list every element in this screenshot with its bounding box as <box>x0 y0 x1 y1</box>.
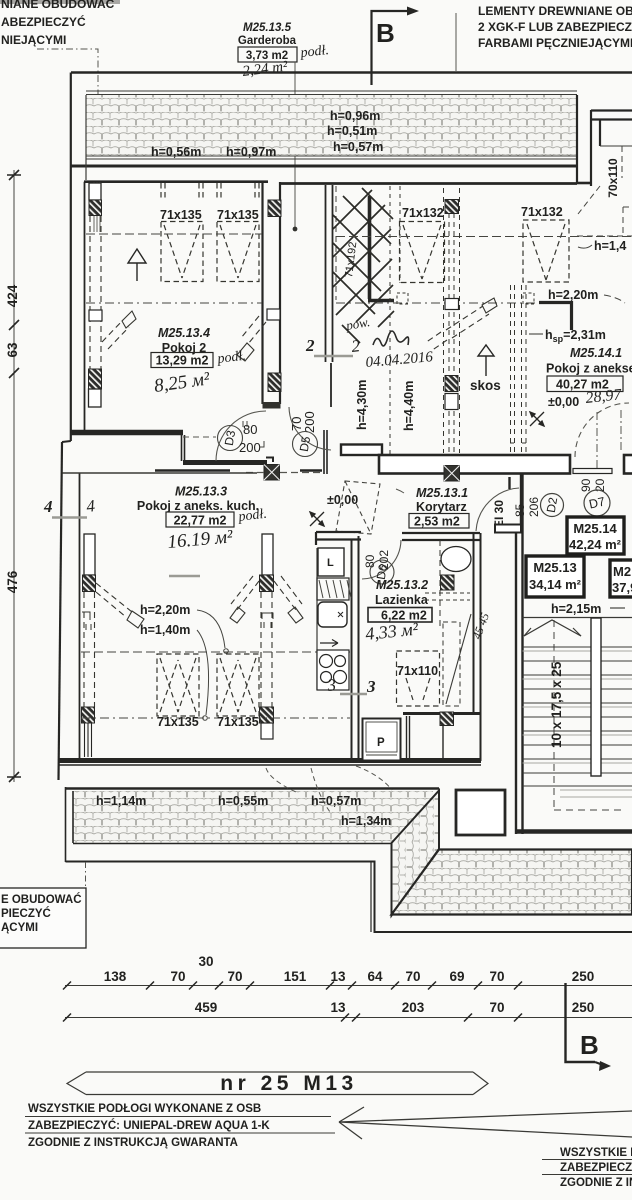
svg-text:10 x 17,5 x 25: 10 x 17,5 x 25 <box>549 661 564 748</box>
svg-text:70: 70 <box>489 1000 504 1015</box>
svg-text:D2: D2 <box>544 496 561 514</box>
svg-text:h=0,56m: h=0,56m <box>151 145 201 159</box>
svg-text:Lazienka: Lazienka <box>375 593 429 607</box>
svg-text:ZABEZPIECZYĆ:: ZABEZPIECZYĆ: <box>560 1161 632 1174</box>
svg-text:3: 3 <box>325 675 336 695</box>
svg-text:200: 200 <box>239 440 261 455</box>
svg-text:ZGODNIE Z INS: ZGODNIE Z INS <box>560 1177 632 1189</box>
svg-text:PIECZYĆ: PIECZYĆ <box>1 907 51 920</box>
svg-text:70x110: 70x110 <box>606 158 620 198</box>
svg-text:71x132: 71x132 <box>521 205 563 219</box>
svg-text:NIEJĄCYMI: NIEJĄCYMI <box>1 33 66 47</box>
svg-text:203: 203 <box>402 1000 425 1015</box>
svg-text:h=0,57m: h=0,57m <box>311 794 361 808</box>
svg-text:4: 4 <box>43 497 53 516</box>
svg-text:nr 25 M13: nr 25 M13 <box>220 1072 357 1095</box>
svg-text:Pokoj z anekse: Pokoj z anekse <box>546 362 632 376</box>
svg-text:ABEZPIECZYĆ: ABEZPIECZYĆ <box>1 14 86 29</box>
svg-text:13: 13 <box>330 969 346 984</box>
svg-text:M25.14: M25.14 <box>573 521 617 536</box>
svg-text:71x135: 71x135 <box>160 208 202 222</box>
svg-text:M25.13.4: M25.13.4 <box>158 326 210 340</box>
svg-text:151: 151 <box>284 969 307 984</box>
svg-text:B: B <box>580 1030 599 1060</box>
svg-text:64: 64 <box>367 969 383 984</box>
svg-text:22,77 m2: 22,77 m2 <box>174 514 227 528</box>
svg-text:h=1,14m: h=1,14m <box>96 794 146 808</box>
svg-text:ZABEZPIECZYĆ: UNIEPAL-DREW AQU: ZABEZPIECZYĆ: UNIEPAL-DREW AQUA 1-K <box>28 1119 270 1132</box>
svg-text:podł.: podł. <box>299 43 330 61</box>
svg-text:LEMENTY DREWNIANE OBUDOW: LEMENTY DREWNIANE OBUDOW <box>478 4 632 18</box>
svg-text:2: 2 <box>305 336 315 355</box>
svg-text:13: 13 <box>330 1000 346 1015</box>
svg-text:h=0,55m: h=0,55m <box>218 794 268 808</box>
svg-text:42,24 m²: 42,24 m² <box>569 537 622 552</box>
svg-text:E OBUDOWAĆ: E OBUDOWAĆ <box>1 893 82 906</box>
svg-text:424: 424 <box>5 284 20 307</box>
svg-text:FARBAMI PĘCZNIEJĄCYMI: FARBAMI PĘCZNIEJĄCYMI <box>478 36 632 50</box>
svg-text:M25.13.3: M25.13.3 <box>175 485 227 499</box>
svg-text:2 XGK-F LUB ZABEZPIECZYĆ: 2 XGK-F LUB ZABEZPIECZYĆ <box>478 19 632 34</box>
svg-text:13,29 m2: 13,29 m2 <box>156 354 209 368</box>
svg-text:90: 90 <box>579 478 593 492</box>
svg-text:3: 3 <box>366 677 376 696</box>
svg-text:206: 206 <box>527 497 541 517</box>
svg-text:476: 476 <box>5 570 20 593</box>
svg-text:Garderoba: Garderoba <box>238 35 297 47</box>
svg-text:70: 70 <box>405 969 420 984</box>
svg-text:h=1,34m: h=1,34m <box>341 814 391 828</box>
svg-text:±0,00: ±0,00 <box>548 395 579 409</box>
svg-text:h=2,15m: h=2,15m <box>551 602 601 616</box>
svg-text:34,14 m²: 34,14 m² <box>529 577 582 592</box>
svg-text:h=2,20m: h=2,20m <box>548 288 598 302</box>
svg-text:h=1,4: h=1,4 <box>594 239 626 253</box>
svg-text:2,53 m2: 2,53 m2 <box>414 515 460 529</box>
svg-text:70: 70 <box>489 969 504 984</box>
svg-text:L: L <box>327 557 334 569</box>
svg-text:Korytarz: Korytarz <box>416 500 467 514</box>
svg-text:80: 80 <box>363 554 377 568</box>
svg-text:skos: skos <box>470 378 501 393</box>
svg-text:71x135: 71x135 <box>217 208 259 222</box>
svg-text:63: 63 <box>5 342 20 358</box>
svg-text:M25.13.1: M25.13.1 <box>416 486 468 500</box>
svg-text:69: 69 <box>449 969 464 984</box>
svg-text:M2: M2 <box>613 564 631 579</box>
svg-text:37,9: 37,9 <box>612 580 632 595</box>
svg-text:ZGODNIE Z INSTRUKCJĄ GWARANTA: ZGODNIE Z INSTRUKCJĄ GWARANTA <box>28 1137 238 1149</box>
svg-text:WSZYSTKIE PODŁOGI WYKONANE Z O: WSZYSTKIE PODŁOGI WYKONANE Z OSB <box>28 1103 261 1115</box>
svg-text:70: 70 <box>227 969 242 984</box>
svg-text:71x135: 71x135 <box>217 715 259 729</box>
svg-text:h=0,97m: h=0,97m <box>226 145 276 159</box>
svg-text:30: 30 <box>198 954 213 969</box>
svg-text:71x110: 71x110 <box>397 664 438 678</box>
svg-text:ĄCYMI: ĄCYMI <box>1 922 38 934</box>
svg-text:459: 459 <box>195 1000 218 1015</box>
svg-text:85: 85 <box>513 503 527 517</box>
svg-text:h=0,96m: h=0,96m <box>330 109 380 123</box>
svg-text:h=0,51m: h=0,51m <box>327 124 377 138</box>
svg-text:71x135: 71x135 <box>157 715 199 729</box>
svg-text:250: 250 <box>572 969 595 984</box>
svg-text:70: 70 <box>170 969 185 984</box>
svg-text:NIANE OBUDOWAĆ: NIANE OBUDOWAĆ <box>1 0 115 11</box>
svg-text:h=2,20m: h=2,20m <box>140 603 190 617</box>
svg-text:138: 138 <box>104 969 127 984</box>
svg-text:h=4,40m: h=4,40m <box>402 381 416 431</box>
svg-text:80: 80 <box>243 422 257 437</box>
svg-text:200: 200 <box>302 411 317 433</box>
svg-text:h=4,30m: h=4,30m <box>355 380 369 430</box>
svg-text:71x132: 71x132 <box>402 206 444 220</box>
svg-text:250: 250 <box>572 1000 595 1015</box>
svg-text:M25.13.5: M25.13.5 <box>243 22 292 34</box>
svg-text:M25.13: M25.13 <box>533 560 576 575</box>
svg-text:P: P <box>377 737 385 749</box>
svg-text:D5: D5 <box>297 435 314 453</box>
svg-text:B: B <box>376 18 395 48</box>
svg-text:D3: D3 <box>222 429 239 447</box>
svg-text:h=1,40m: h=1,40m <box>140 623 190 637</box>
svg-text:M25.13.2: M25.13.2 <box>376 578 428 592</box>
svg-text:WSZYSTKIE POD: WSZYSTKIE POD <box>560 1147 632 1159</box>
svg-text:h=0,57m: h=0,57m <box>333 140 383 154</box>
svg-text:M25.14.1: M25.14.1 <box>570 346 622 360</box>
